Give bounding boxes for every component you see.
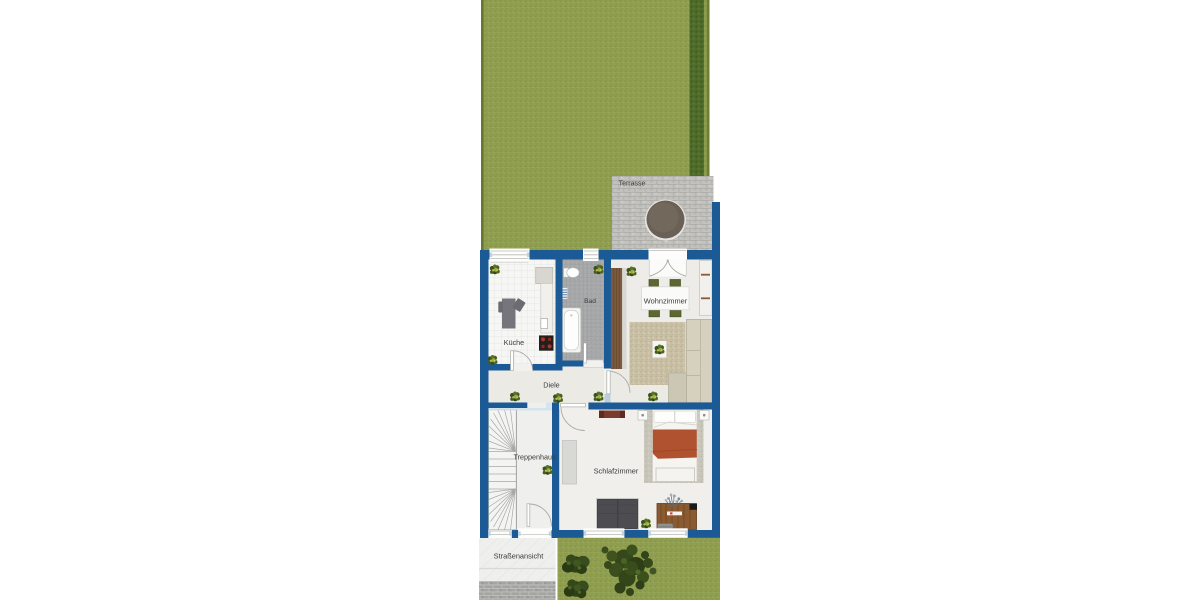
svg-text:Küche: Küche (504, 338, 524, 347)
svg-text:Wohnzimmer: Wohnzimmer (644, 297, 688, 306)
svg-text:Straßenansicht: Straßenansicht (494, 552, 544, 561)
svg-text:Treppenhaus: Treppenhaus (513, 453, 555, 462)
svg-text:Terrasse: Terrasse (619, 181, 646, 188)
svg-text:Bad: Bad (584, 298, 596, 305)
svg-text:Schlafzimmer: Schlafzimmer (594, 467, 639, 476)
svg-text:Diele: Diele (543, 381, 559, 390)
